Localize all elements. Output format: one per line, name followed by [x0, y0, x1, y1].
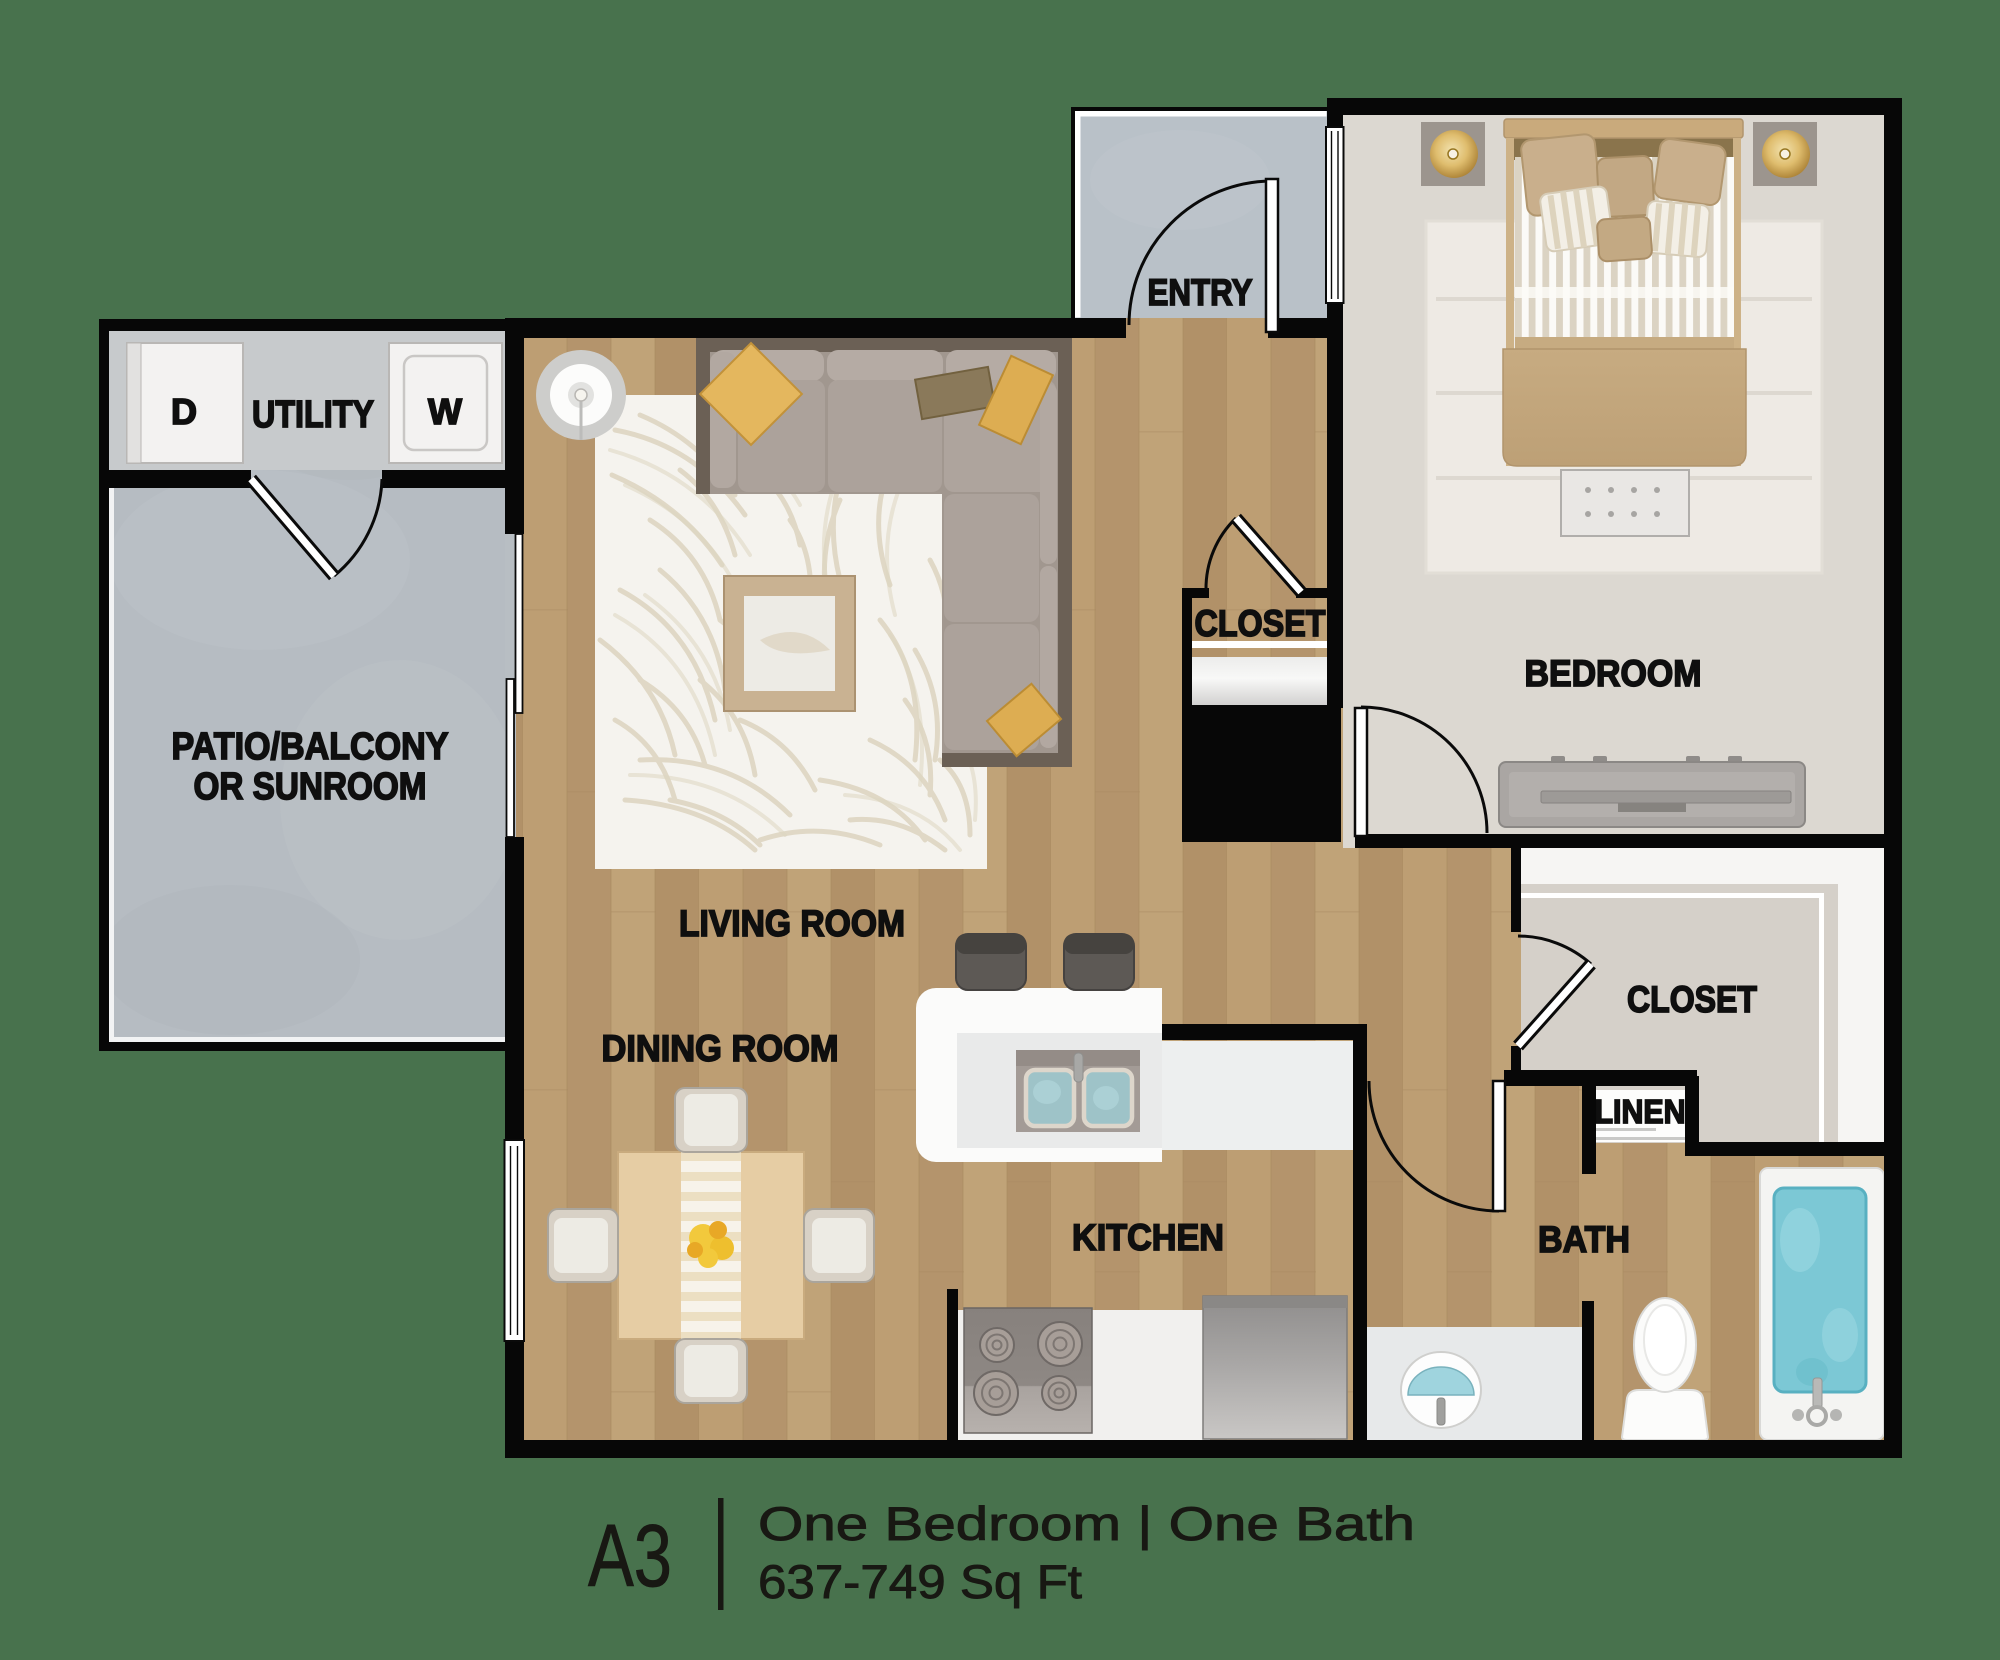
svg-text:LIVING ROOM: LIVING ROOM [679, 903, 905, 944]
svg-text:ENTRY: ENTRY [1148, 272, 1253, 313]
svg-text:LINEN: LINEN [1595, 1093, 1686, 1130]
svg-text:One Bedroom | One Bath: One Bedroom | One Bath [758, 1497, 1415, 1550]
svg-text:A3: A3 [588, 1506, 672, 1605]
svg-text:UTILITY: UTILITY [252, 394, 374, 436]
svg-text:OR SUNROOM: OR SUNROOM [194, 766, 427, 808]
svg-text:CLOSET: CLOSET [1195, 603, 1326, 644]
svg-text:W: W [428, 391, 462, 432]
svg-text:DINING ROOM: DINING ROOM [602, 1028, 839, 1069]
svg-text:BATH: BATH [1538, 1219, 1630, 1260]
svg-text:CLOSET: CLOSET [1627, 979, 1757, 1020]
svg-text:PATIO/BALCONY: PATIO/BALCONY [172, 726, 449, 768]
svg-text:KITCHEN: KITCHEN [1072, 1217, 1224, 1258]
svg-text:637-749 Sq Ft: 637-749 Sq Ft [758, 1555, 1082, 1608]
svg-text:D: D [171, 391, 197, 432]
svg-text:BEDROOM: BEDROOM [1525, 653, 1702, 694]
